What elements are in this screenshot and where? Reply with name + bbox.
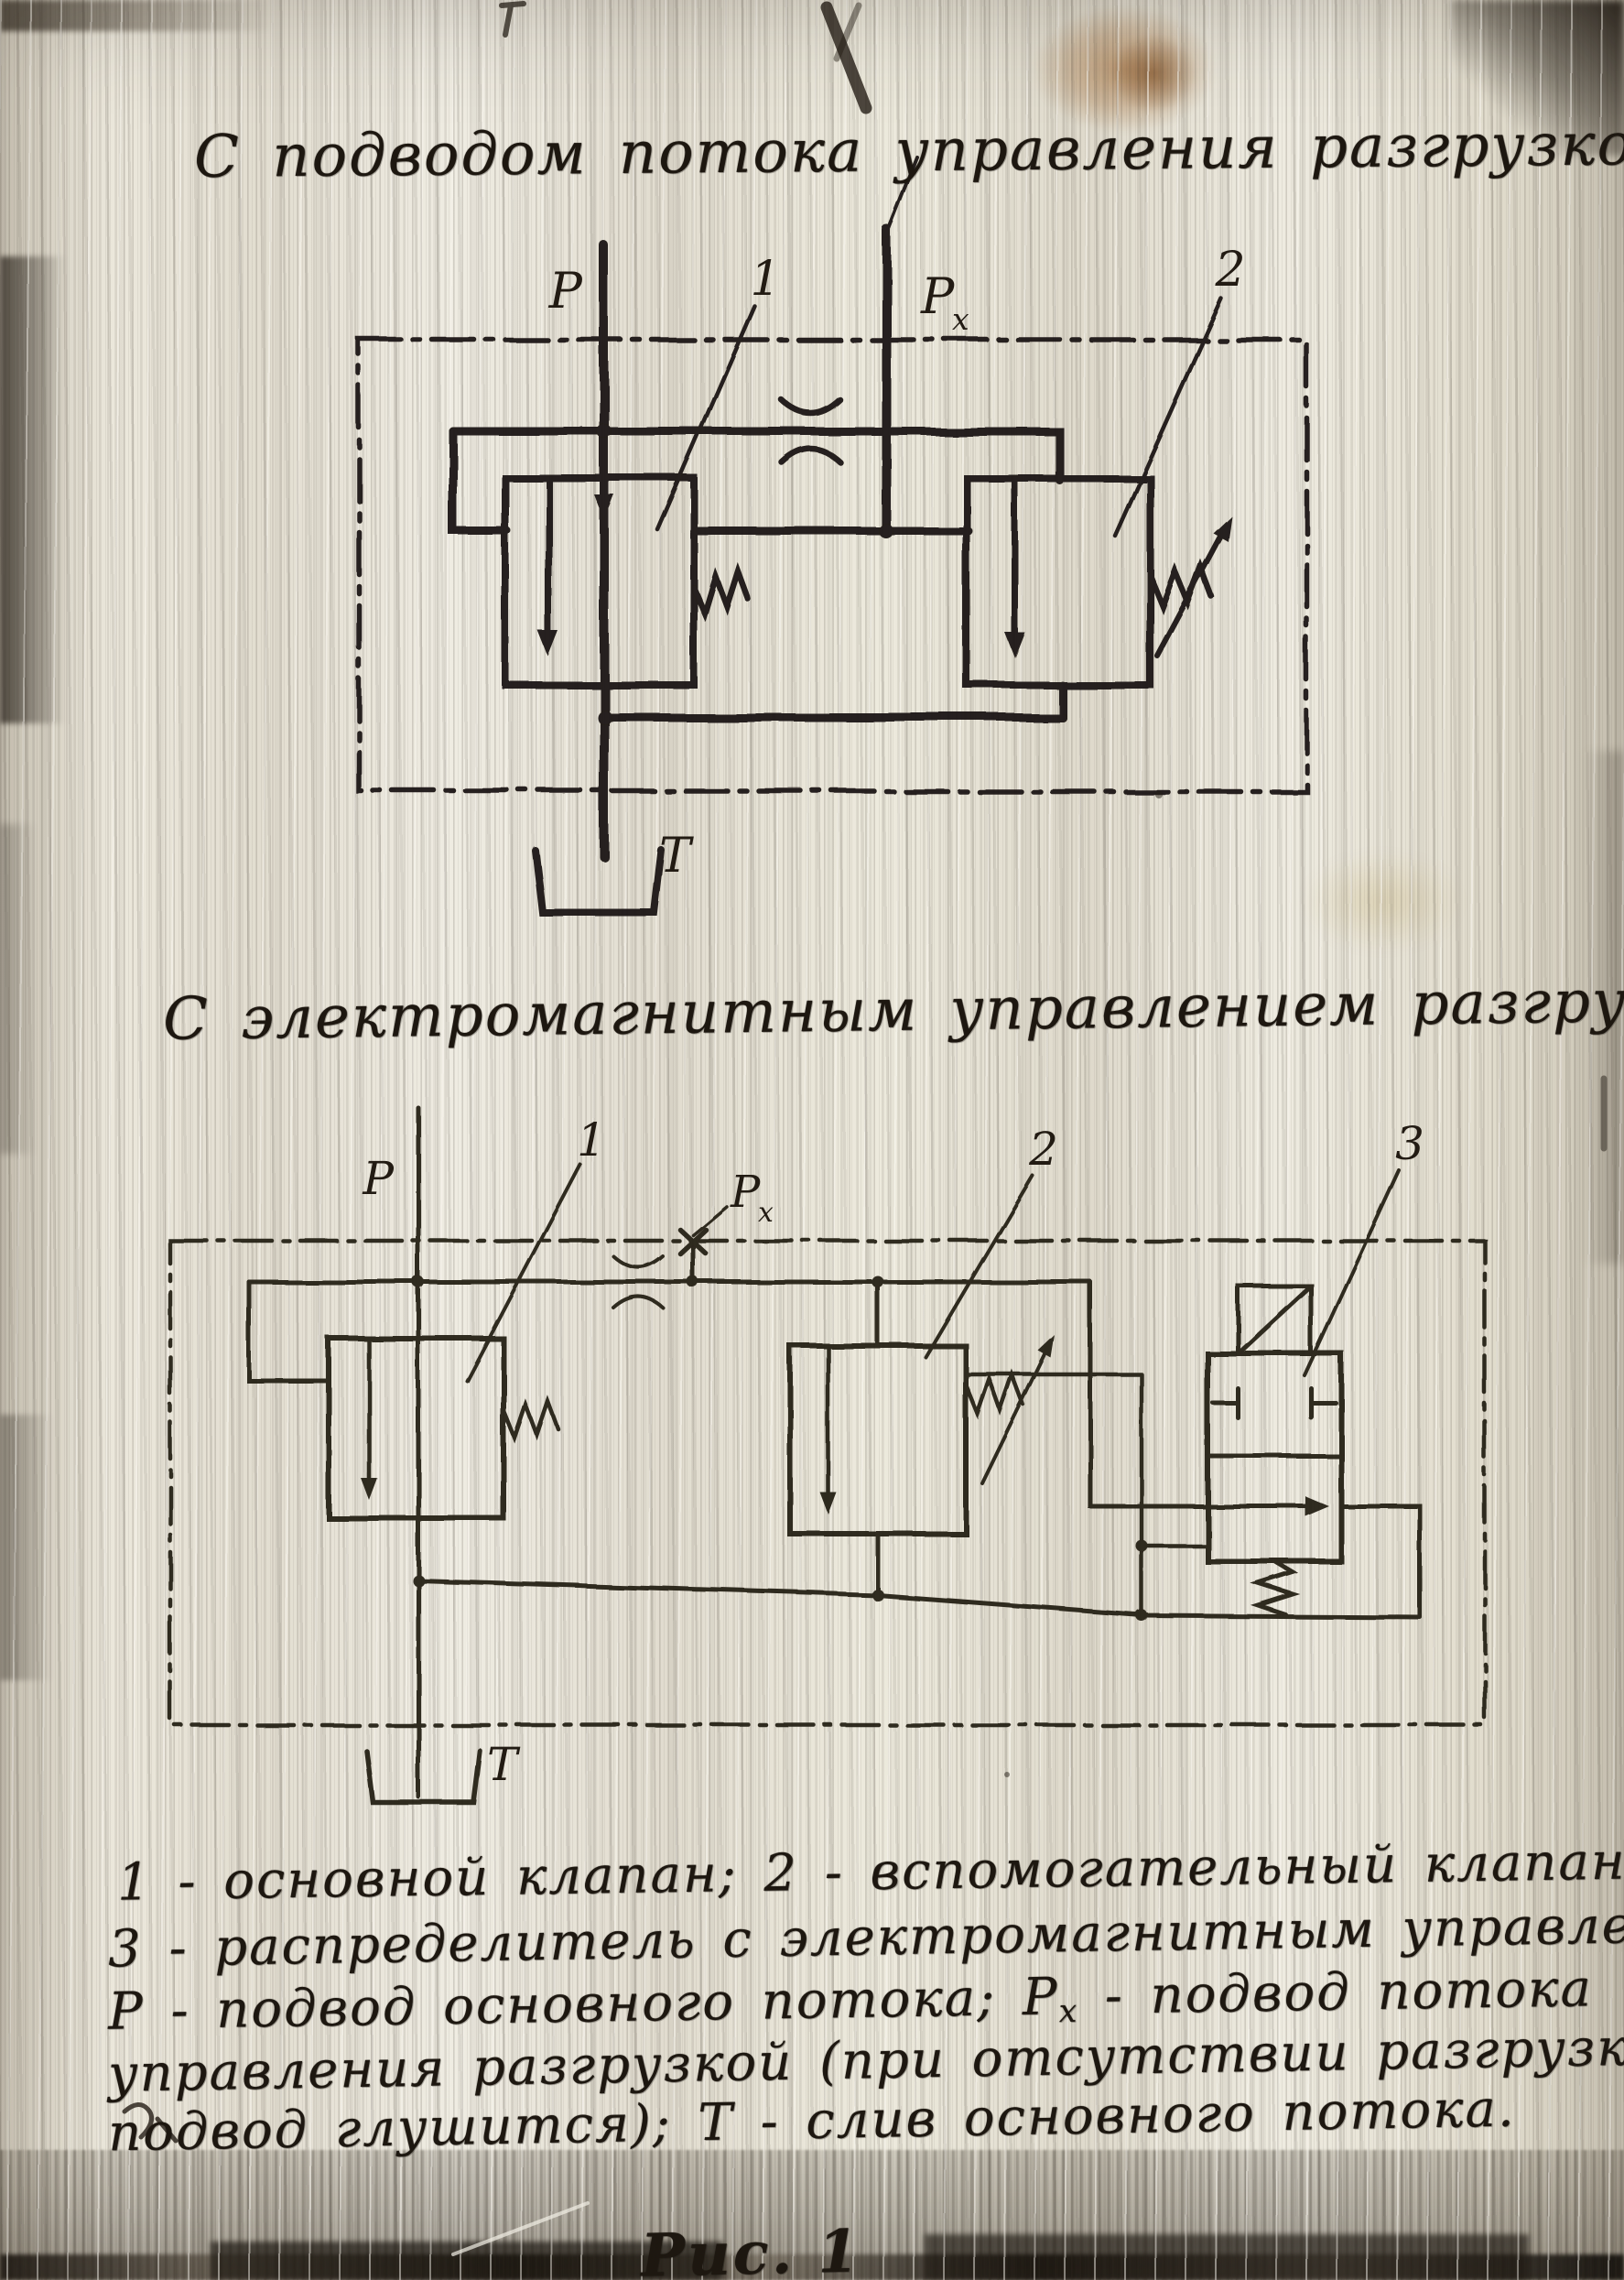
down-arrow-icon bbox=[539, 632, 559, 657]
ink-smudge bbox=[827, 7, 866, 108]
diagram2-schematic bbox=[170, 1108, 1485, 1802]
port-label-px-sub: х bbox=[758, 1197, 774, 1229]
diagram2-valve3-return-line bbox=[1341, 1506, 1420, 1617]
port-label-t: Т bbox=[487, 1738, 521, 1791]
leader-line-3 bbox=[1305, 1170, 1399, 1375]
junction-dot bbox=[872, 1276, 884, 1288]
port-label-p: Р bbox=[548, 262, 584, 320]
diagram2-aux-valve-body bbox=[790, 1346, 966, 1534]
junction-dot bbox=[413, 1276, 425, 1288]
top-edge-mark bbox=[502, 4, 524, 35]
junction-dot bbox=[872, 1590, 884, 1601]
port-label-p: Р bbox=[362, 1152, 395, 1205]
tank-symbol-icon bbox=[366, 1751, 480, 1802]
spring-icon bbox=[503, 1401, 558, 1438]
diagram2-pilot-to-valve3 bbox=[1090, 1282, 1207, 1506]
arrowhead-icon bbox=[1214, 516, 1232, 542]
callout-number-2: 2 bbox=[1028, 1123, 1058, 1176]
adjustment-arrow-icon bbox=[982, 1342, 1051, 1483]
callout-number-1: 1 bbox=[577, 1113, 606, 1167]
adjustable-spring-icon bbox=[966, 1375, 1023, 1414]
leader-line-1 bbox=[467, 1165, 580, 1381]
diagram2-pilot-loop-left bbox=[249, 1282, 329, 1381]
speck bbox=[1155, 791, 1163, 798]
scanned-page: Р Р х Т 1 2 bbox=[0, 0, 1624, 2280]
diagram2-px-tail bbox=[693, 1207, 727, 1235]
down-arrow-icon bbox=[820, 1493, 837, 1515]
junction-dot bbox=[687, 1276, 699, 1288]
blocked-ports-icon bbox=[1213, 1388, 1336, 1417]
junction-dot bbox=[879, 524, 893, 538]
electromagnet-diagonal bbox=[1238, 1286, 1311, 1353]
spring-icon bbox=[694, 571, 748, 613]
port-label-px-sub: х bbox=[952, 301, 969, 337]
callout-number-2: 2 bbox=[1214, 243, 1245, 298]
callout-number-1: 1 bbox=[750, 252, 780, 307]
diagram2-labels: Р Р х Т 1 2 3 bbox=[362, 1113, 1424, 1791]
leader-line-2 bbox=[1115, 299, 1221, 536]
diagram1-aux-valve-body bbox=[967, 478, 1150, 685]
junction-dot bbox=[597, 424, 612, 439]
callout-number-3: 3 bbox=[1395, 1117, 1424, 1170]
down-arrow-icon bbox=[594, 494, 614, 520]
port-label-t: Т bbox=[659, 829, 694, 884]
speck bbox=[1004, 1772, 1010, 1777]
arrowhead-icon bbox=[1038, 1335, 1055, 1358]
down-arrow-icon bbox=[1004, 632, 1024, 657]
junction-dot bbox=[1136, 1610, 1148, 1622]
diagram1-schematic bbox=[359, 157, 1306, 912]
return-spring-icon bbox=[1258, 1561, 1293, 1614]
port-label-px: Р bbox=[920, 267, 956, 325]
down-arrow-icon bbox=[361, 1478, 377, 1500]
caption-line-3-subscript: х bbox=[1058, 1993, 1078, 2030]
title-top: С подводом потока управления разгрузкой bbox=[194, 111, 1624, 191]
figure-label: Рис. 1 bbox=[640, 2217, 861, 2280]
leader-line-2 bbox=[926, 1176, 1033, 1357]
scratch-mark bbox=[453, 2203, 588, 2254]
junction-dot bbox=[413, 1575, 425, 1587]
port-label-px: Р bbox=[730, 1167, 761, 1218]
junction-dot bbox=[597, 710, 612, 724]
caption-line-3-post: - подвод потока bbox=[1078, 1959, 1594, 2026]
diagram1-pilot-branch-upper bbox=[453, 431, 1059, 480]
junction-dot bbox=[1136, 1540, 1148, 1552]
diagram1-pilot-loop-left bbox=[453, 431, 507, 531]
tank-symbol-icon bbox=[535, 850, 661, 912]
flow-arrow-icon bbox=[1305, 1496, 1329, 1516]
